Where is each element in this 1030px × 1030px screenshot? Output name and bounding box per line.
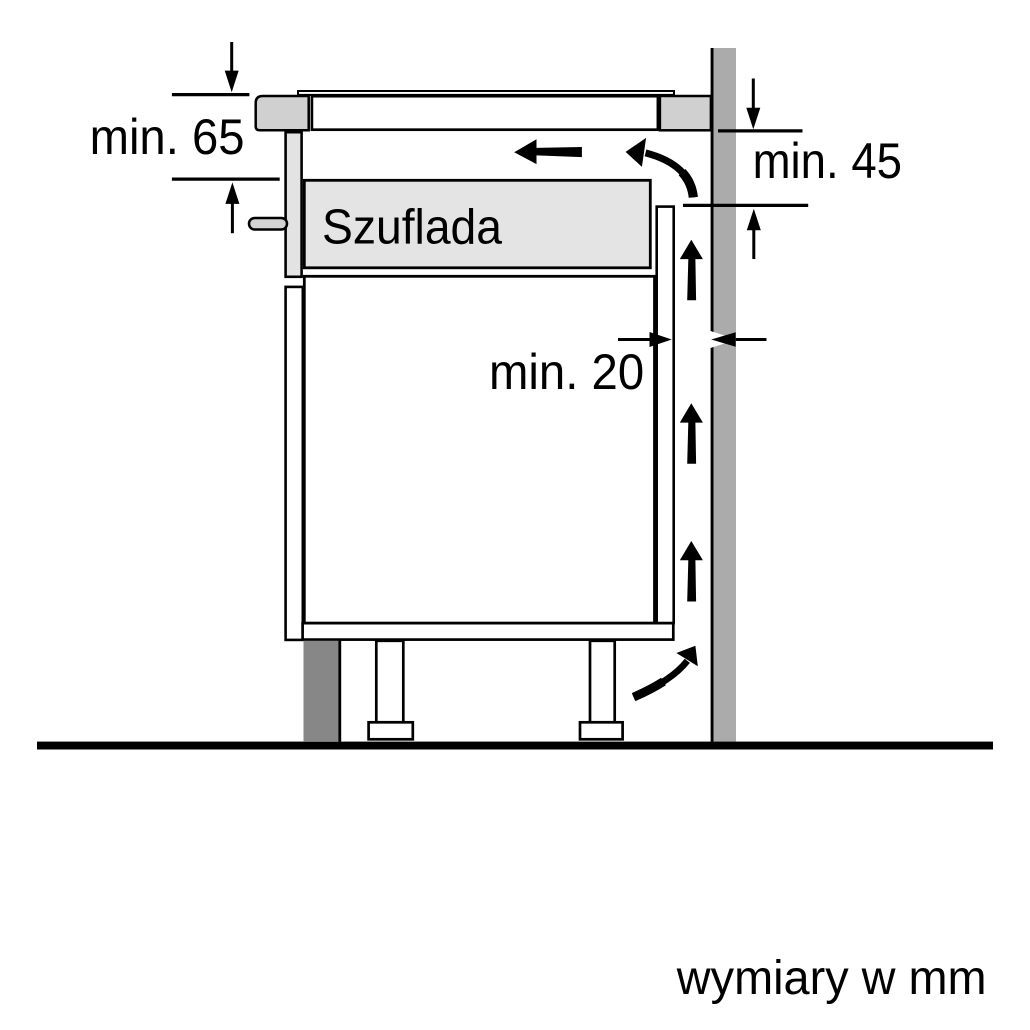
svg-text:min. 65: min. 65 [90,108,245,165]
svg-text:Szuflada: Szuflada [322,201,503,255]
svg-text:min. 45: min. 45 [753,132,902,189]
svg-text:wymiary w mm: wymiary w mm [676,951,987,1005]
svg-text:min. 20: min. 20 [489,343,644,400]
